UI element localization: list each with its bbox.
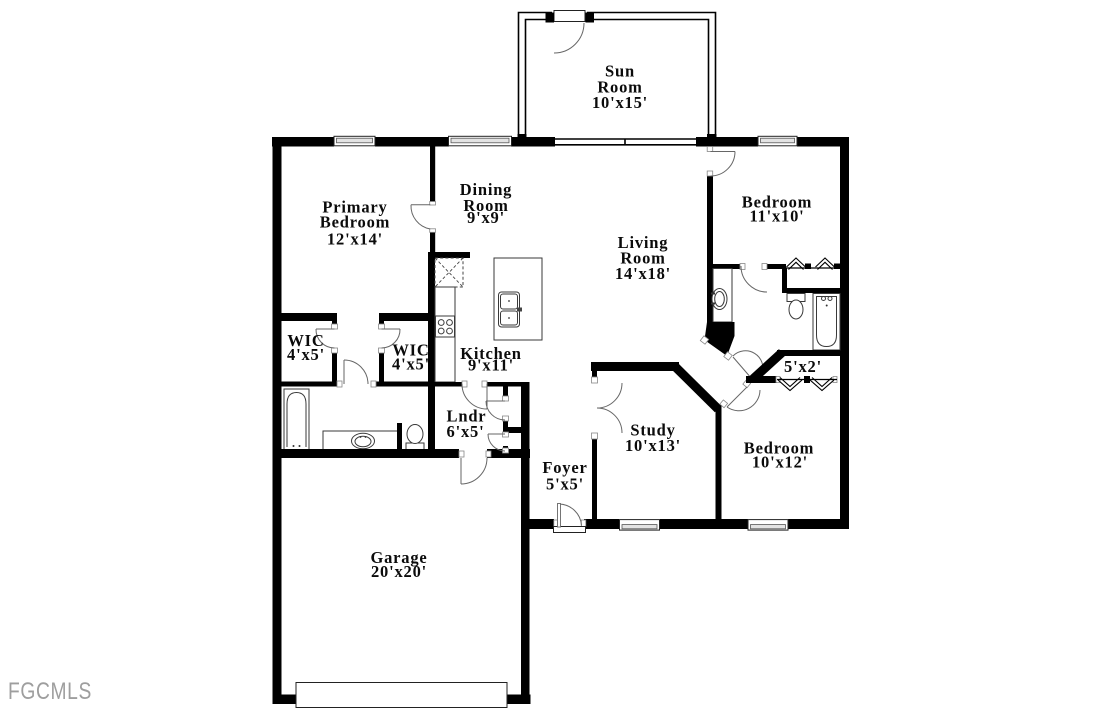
svg-text:6'x5': 6'x5' [447, 422, 485, 441]
svg-text:11'x10': 11'x10' [749, 207, 804, 226]
svg-text:4'x5': 4'x5' [287, 345, 325, 364]
svg-text:20'x20': 20'x20' [371, 562, 427, 581]
svg-text:14'x18': 14'x18' [615, 264, 671, 283]
svg-text:9'x9': 9'x9' [467, 208, 505, 227]
svg-text:4'x5': 4'x5' [392, 355, 430, 374]
svg-text:10'x15': 10'x15' [592, 93, 648, 112]
svg-text:5'x5': 5'x5' [546, 475, 584, 494]
svg-text:5'x2': 5'x2' [784, 357, 822, 376]
svg-text:FGCMLS: FGCMLS [8, 678, 92, 705]
svg-text:9'x11': 9'x11' [468, 356, 514, 375]
svg-text:10'x13': 10'x13' [625, 436, 681, 455]
svg-text:12'x14': 12'x14' [327, 230, 383, 249]
svg-text:10'x12': 10'x12' [752, 453, 808, 472]
